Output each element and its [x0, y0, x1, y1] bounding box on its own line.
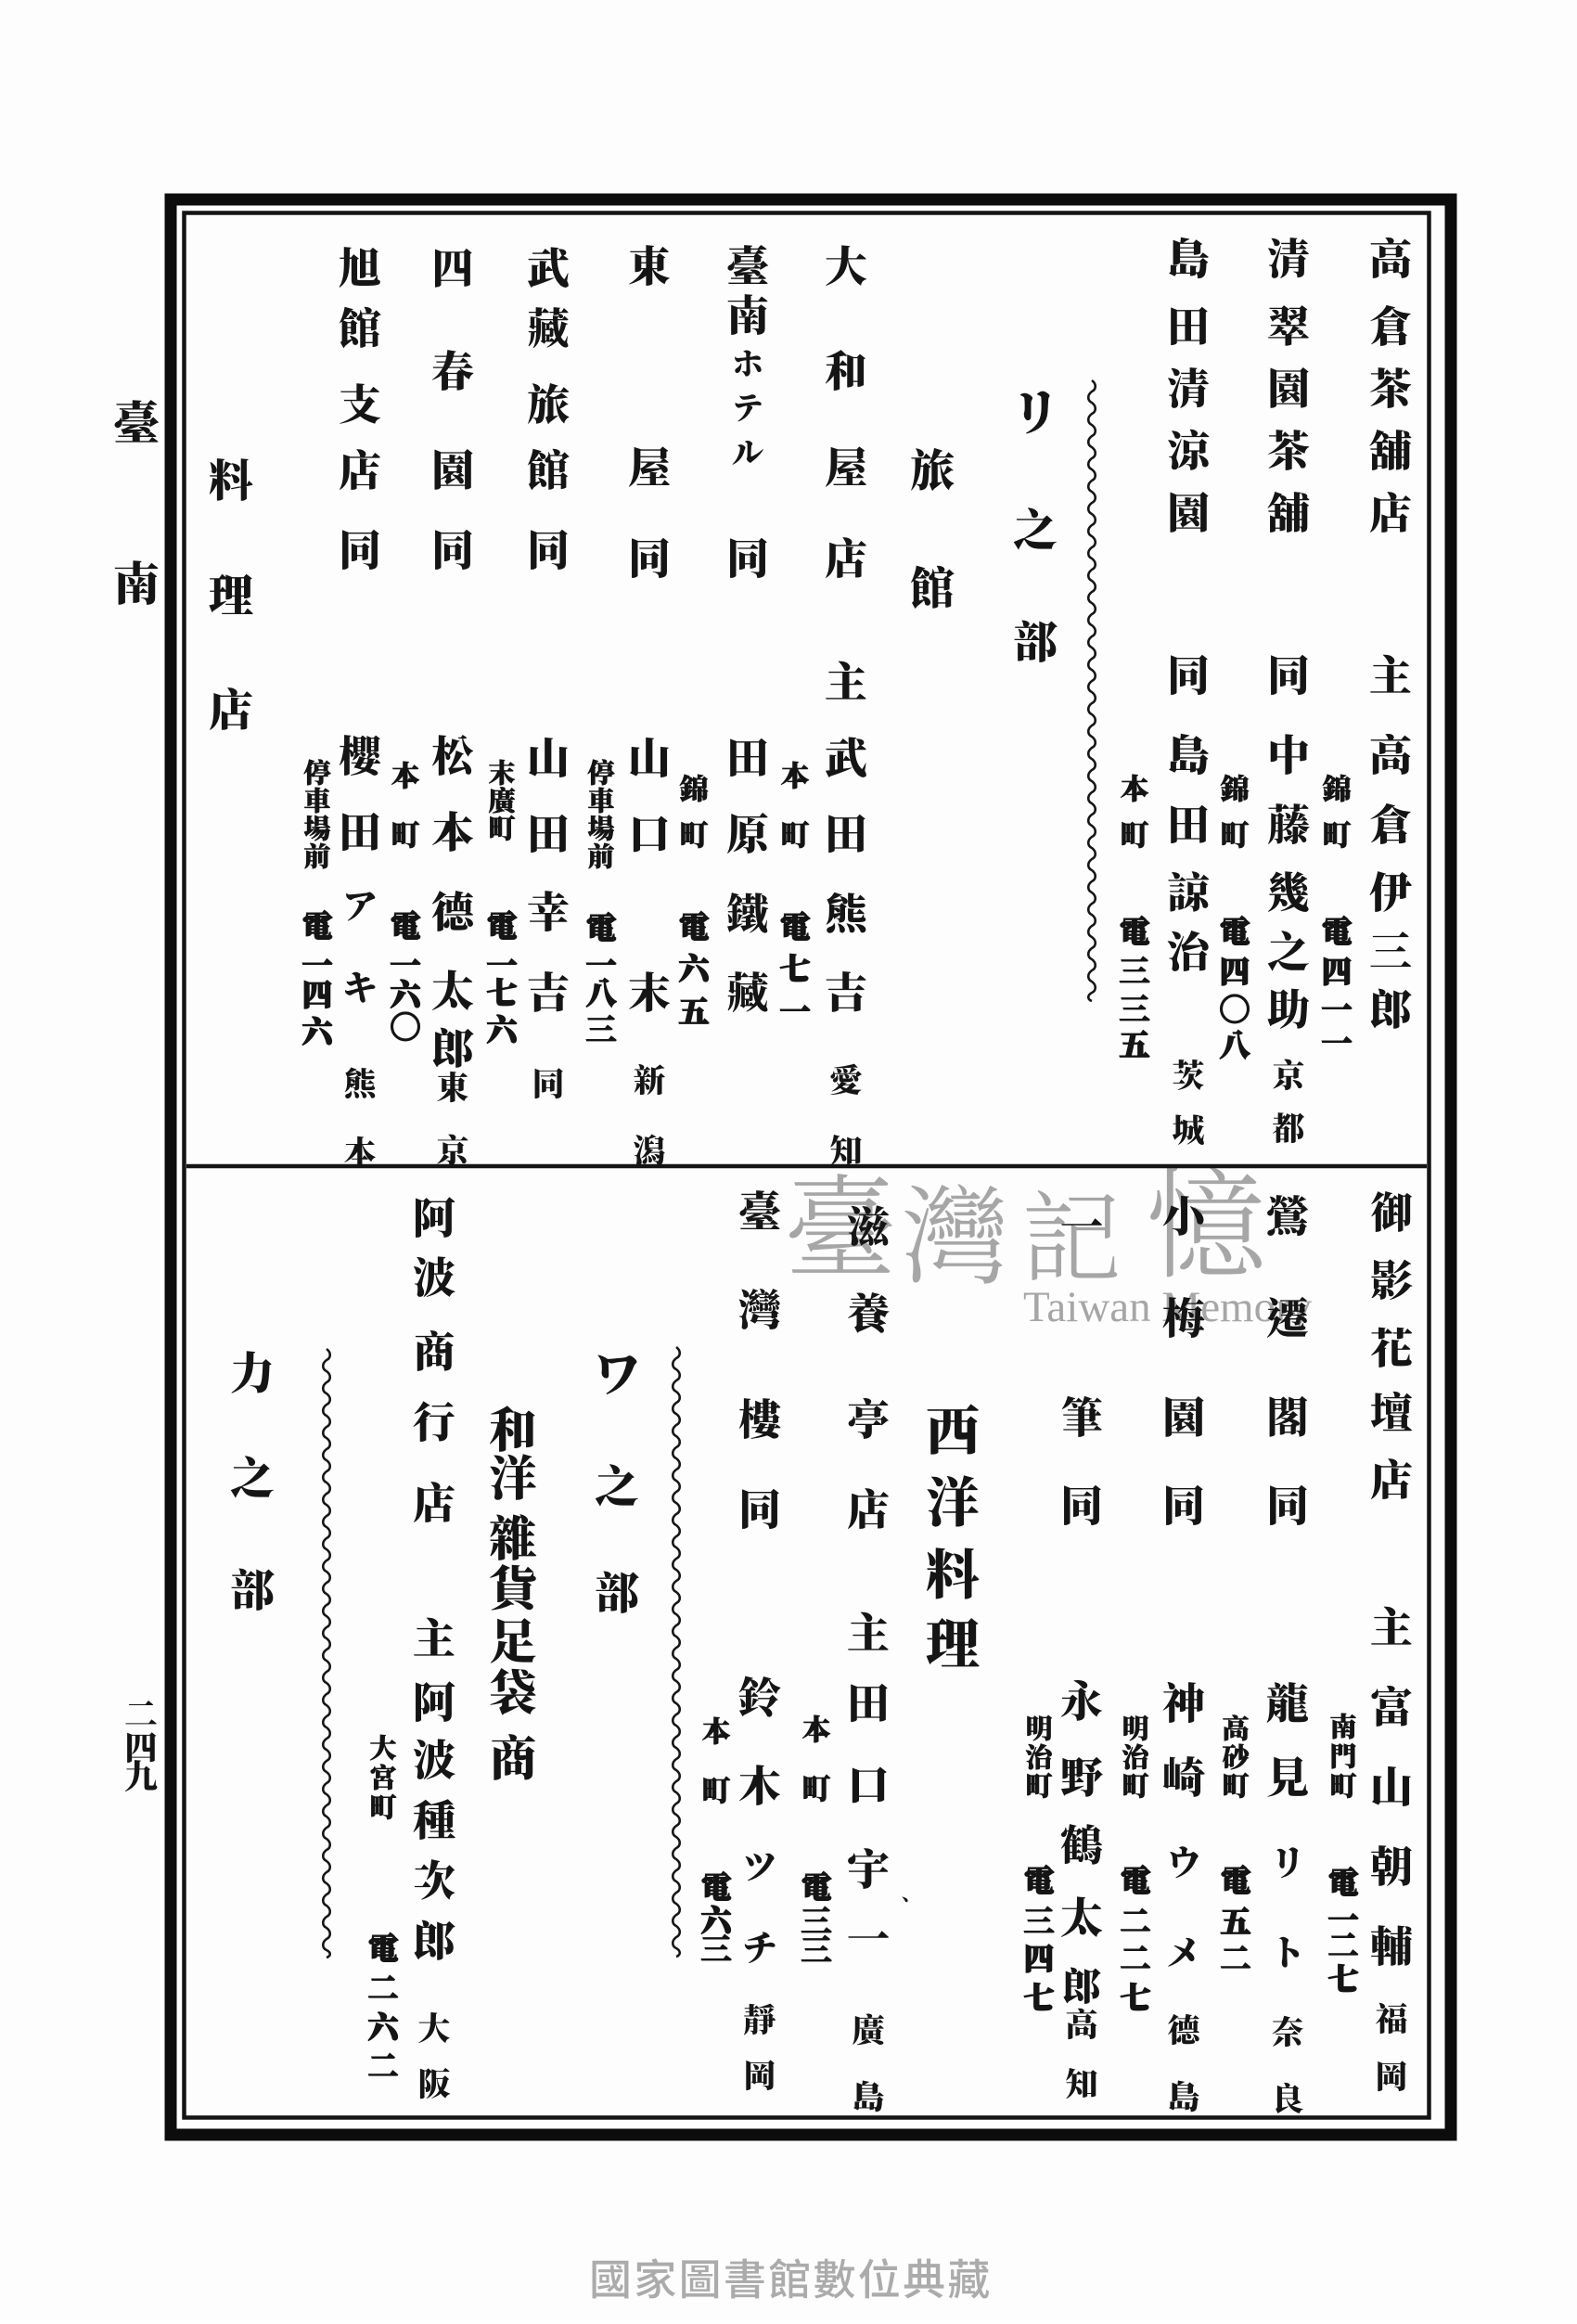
- svg-text:Taiwan Memory: Taiwan Memory: [1023, 1283, 1313, 1331]
